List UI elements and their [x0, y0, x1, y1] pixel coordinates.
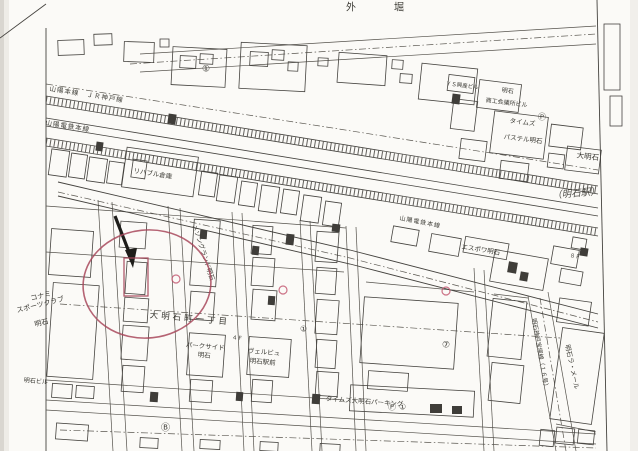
map-symbol-parking-p-lot: Ⓟ — [388, 403, 396, 412]
city-map: 外 堀山陽本線 ＪＲ神戸線山陽電鉄本線山陽電鉄本線リハブル倉庫メゾングランド明石… — [0, 0, 638, 451]
scanned-map-page: 外 堀山陽本線 ＪＲ神戸線山陽電鉄本線山陽電鉄本線リハブル倉庫メゾングランド明石… — [0, 0, 638, 451]
building-shaded — [95, 142, 103, 152]
map-symbol-parking-p-times-plaza: Ⓟ — [538, 113, 546, 122]
map-symbol-circled-1-block: ① — [202, 65, 210, 75]
building-shaded — [268, 296, 276, 305]
building-shaded — [451, 94, 460, 105]
building-shaded — [167, 113, 176, 124]
building-shaded — [332, 224, 341, 233]
scan-edge-left-soft — [4, 0, 9, 451]
map-symbol-circled-1-lot: ① — [399, 403, 406, 412]
map-symbol-circled-b-busstop: Ⓑ — [161, 423, 170, 434]
building-shaded — [236, 392, 244, 401]
map-symbol-circled-1-district: ① — [300, 325, 307, 334]
map-label-parkside-line2: 明石 — [197, 351, 211, 360]
map-label-floor-4f: ４Ｆ — [232, 334, 244, 342]
scan-edge-left — [0, 0, 4, 451]
building-shaded — [252, 246, 260, 256]
building-shaded — [150, 392, 159, 403]
building-shaded — [519, 271, 528, 281]
building-shaded — [430, 404, 442, 413]
building-shaded — [312, 394, 321, 405]
building-shaded — [452, 406, 462, 414]
map-label-outer-moat: 外 堀 — [346, 1, 418, 13]
map-symbol-circled-7-parking: ⑦ — [442, 341, 450, 351]
building-shaded — [285, 234, 294, 246]
map-label-cci-line1: 明石 — [501, 87, 514, 95]
building-shaded — [507, 261, 518, 273]
scan-edge-right — [630, 0, 638, 451]
